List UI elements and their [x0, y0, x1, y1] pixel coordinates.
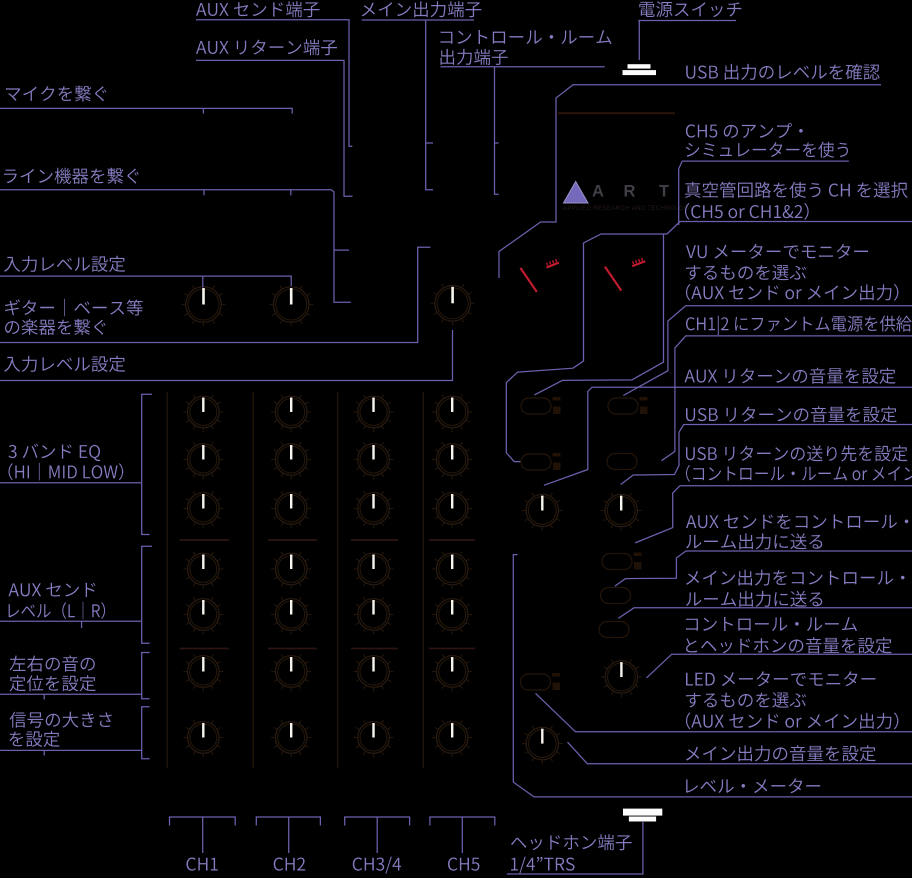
svg-text:R: R — [624, 183, 636, 201]
svg-text:APPLIED RESEARCH AND TECHNOLOG: APPLIED RESEARCH AND TECHNOLOGY — [563, 205, 694, 212]
svg-text:A: A — [592, 183, 604, 201]
svg-text:T: T — [659, 183, 669, 201]
